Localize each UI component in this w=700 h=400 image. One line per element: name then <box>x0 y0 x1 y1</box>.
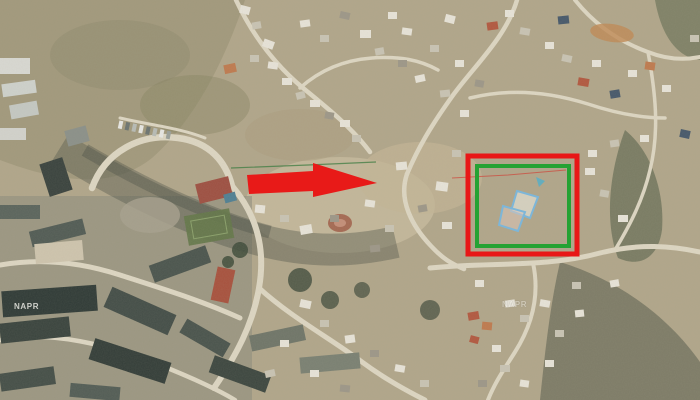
cadastral-boundary-line <box>231 162 376 168</box>
napr-watermark: NAPR <box>502 300 527 309</box>
map-viewport: NAPR NAPR <box>0 0 700 400</box>
parcel-marker <box>536 177 545 187</box>
napr-watermark: NAPR <box>14 302 39 311</box>
annotation-layer <box>0 0 700 400</box>
red-pointer-arrow <box>247 163 377 197</box>
